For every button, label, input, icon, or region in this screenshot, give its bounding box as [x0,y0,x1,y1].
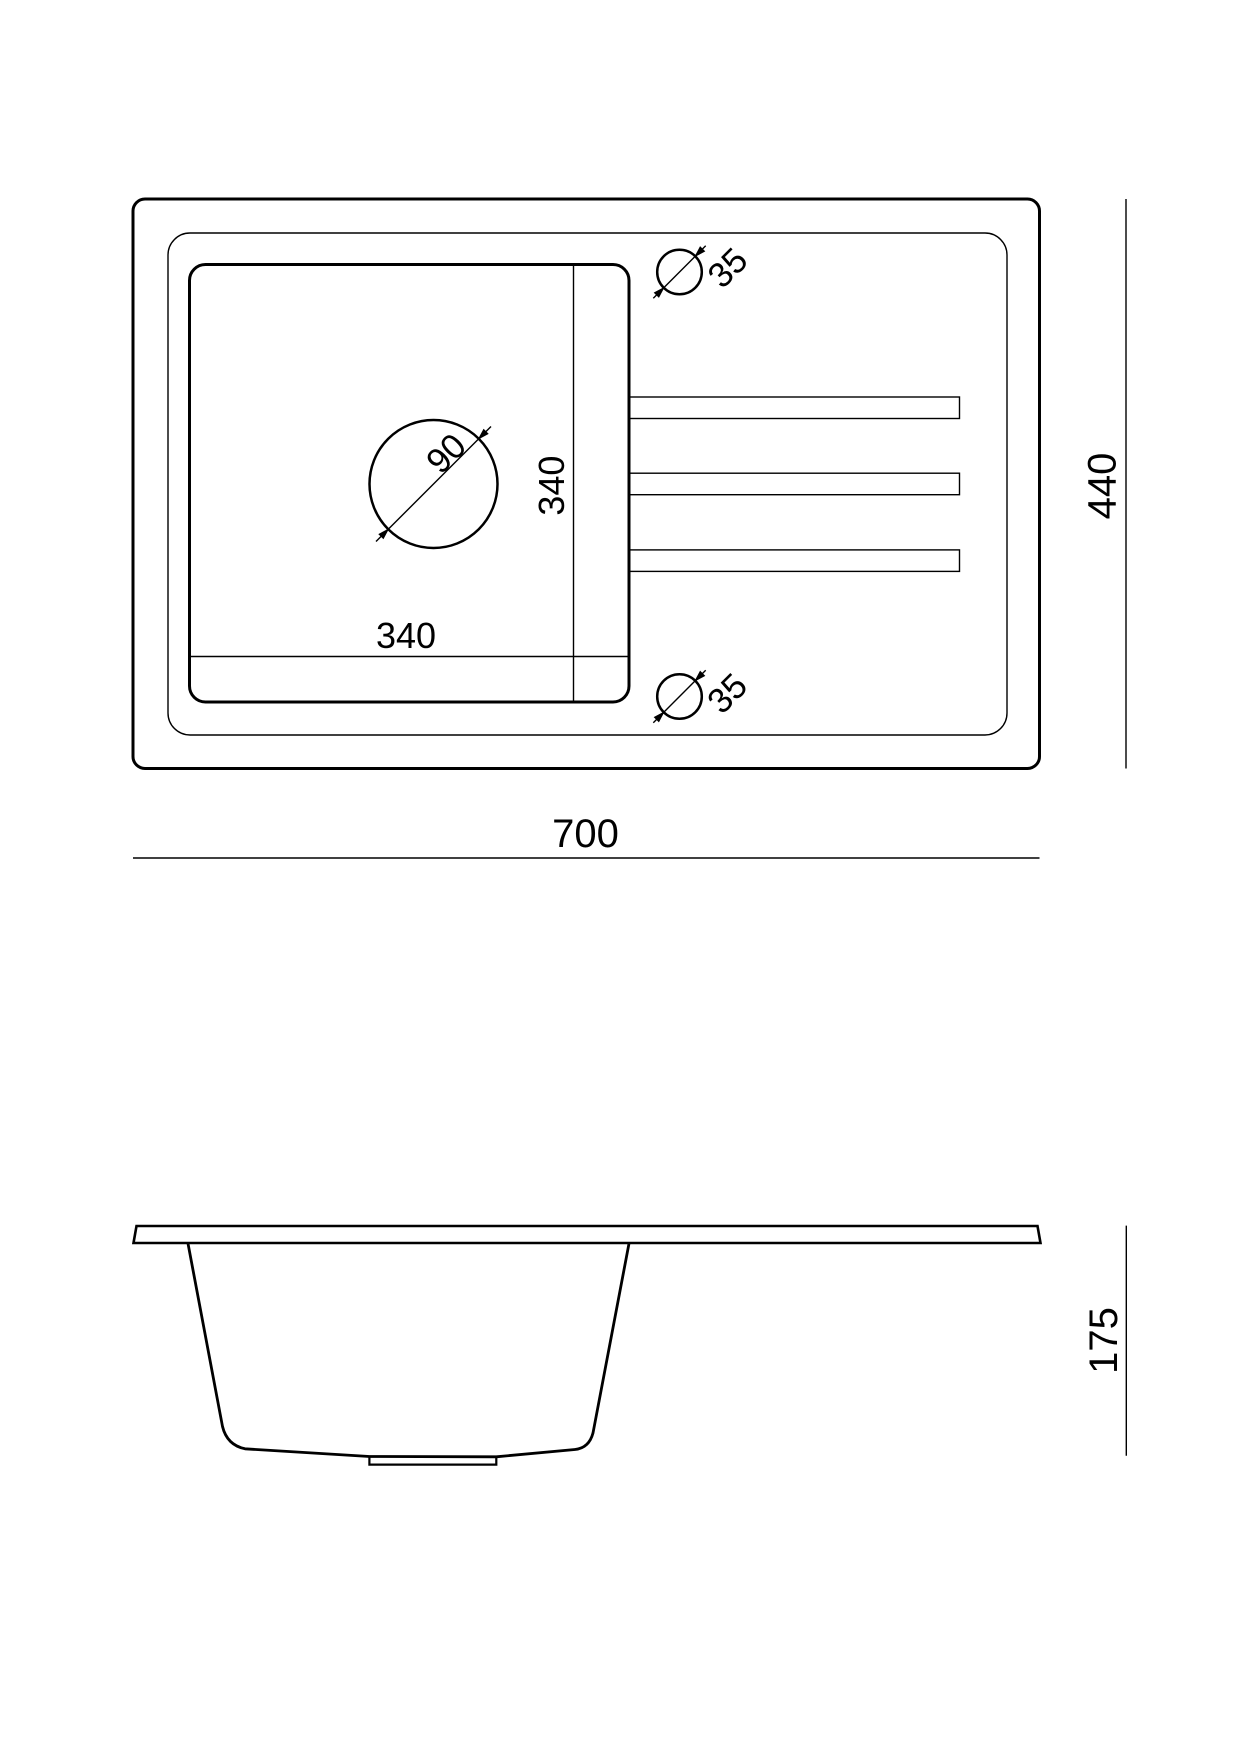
svg-text:90: 90 [419,426,474,481]
svg-text:35: 35 [700,666,755,721]
svg-text:340: 340 [376,615,436,656]
svg-text:440: 440 [1081,453,1125,520]
svg-text:175: 175 [1082,1307,1126,1374]
svg-text:340: 340 [531,456,572,516]
svg-text:700: 700 [552,812,619,856]
svg-text:35: 35 [700,241,755,296]
